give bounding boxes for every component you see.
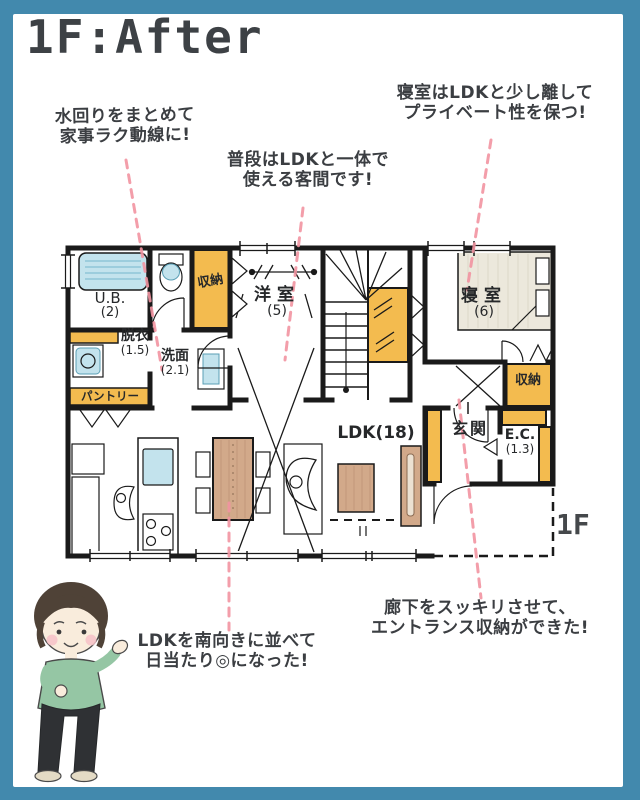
room-label-youshitsu: 洋室 (5) — [232, 286, 322, 319]
page-canvas: 1F:After 水回りをまとめて 家事ラク動線に! 普段はLDKと一体で 使え… — [0, 0, 640, 800]
hanging-wall-symbol — [250, 265, 317, 279]
stair-closet-area — [368, 288, 408, 362]
page-title: 1F:After — [26, 10, 264, 64]
dining-table — [196, 438, 270, 520]
toilet — [159, 254, 183, 291]
annotation-rouka: 廊下をスッキリさせて、 エントランス収納ができた! — [360, 598, 600, 638]
annotation-kyakuma: 普段はLDKと一体で 使える客間です! — [218, 150, 398, 190]
mascot-character — [8, 576, 143, 791]
ec-shelf-right — [539, 427, 551, 482]
room-label-ub: U.B. (2) — [72, 290, 148, 320]
annotation-mizumawari: 水回りをまとめて 家事ラク動線に! — [35, 104, 216, 147]
room-label-senmen: 洗面 (2.1) — [150, 349, 200, 377]
floor-marker-1f: 1F — [556, 508, 590, 541]
bathtub — [79, 253, 147, 290]
annotation-ldk-minami: LDKを南向きに並べて 日当たり◎になった! — [127, 631, 327, 671]
room-label-genkan: 玄関 — [442, 420, 498, 437]
room-label-closet-right: 収納 — [505, 374, 551, 388]
washing-machine — [73, 345, 103, 377]
annotation-shinshitsu: 寝室はLDKと少し離して プライベート性を保つ! — [378, 83, 612, 123]
sofa — [284, 444, 322, 534]
room-label-pantry: パントリー — [70, 390, 150, 402]
tv-board — [401, 446, 421, 526]
room-label-ec: E.C. (1.3) — [500, 428, 540, 456]
ec-shelf-top — [502, 410, 546, 425]
room-label-ldk: LDK(18) — [328, 424, 424, 442]
low-table — [338, 464, 374, 512]
room-label-shinshitsu: 寝室 (6) — [444, 287, 524, 320]
washbasin — [198, 349, 224, 389]
kitchen-counter — [72, 438, 178, 556]
genkan-shoe-closet — [427, 410, 441, 482]
